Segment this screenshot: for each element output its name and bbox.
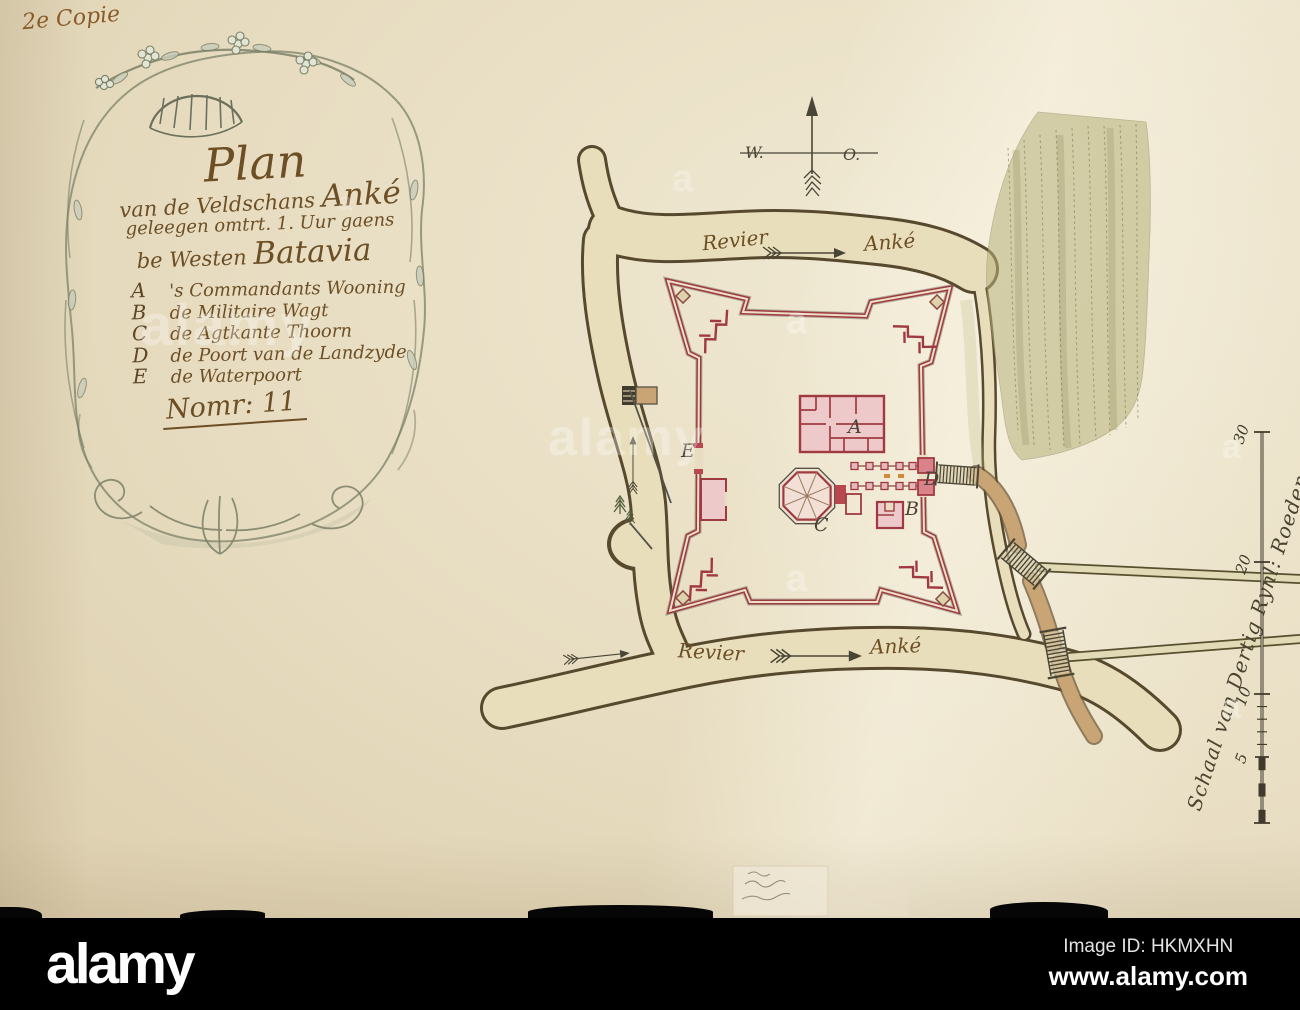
legend-label-e: de Waterpoort [171, 364, 302, 387]
river-label-bottom: Revier [677, 638, 744, 665]
shell-ornament [150, 94, 242, 137]
map-paper: 30 20 10 5 Schaal van Dertig Rynl: Roede… [0, 0, 1300, 918]
ghost-watermark-letter: a [672, 158, 695, 201]
palisade-rows [850, 463, 918, 490]
river-name-bottom: Anké [870, 633, 922, 659]
ghost-watermark-letter: a [786, 558, 809, 601]
scan-edge-artifact [990, 902, 1108, 919]
fort-letter-a: A [848, 416, 862, 438]
plantation-area [987, 112, 1151, 460]
fort-letter-c: C [814, 514, 829, 536]
bridge-gate-d [935, 462, 978, 489]
scale-tick-5: 5 [1231, 751, 1251, 766]
building-a-commandants-dwelling [800, 396, 884, 452]
paper-label-patch [733, 866, 908, 916]
scan-edge-artifact [528, 905, 713, 919]
west-bridge [622, 386, 657, 405]
fort-letter-d: D [924, 468, 939, 490]
ghost-watermark: alamy [548, 408, 705, 468]
image-id-text: Image ID: HKMXHN [1063, 936, 1233, 958]
pine-tree [614, 496, 626, 514]
compass-east-label: O. [843, 145, 860, 164]
watergate-tick [694, 469, 703, 474]
city-name: Batavia [253, 232, 372, 272]
fort-plan [668, 281, 957, 611]
scale-bar: 30 20 10 5 Schaal van Dertig Rynl: Roede… [1182, 422, 1300, 823]
alamy-logo: alamy [46, 931, 193, 997]
ghost-watermark: alamy [140, 292, 314, 359]
scanned-map-page: 30 20 10 5 Schaal van Dertig Rynl: Roede… [0, 0, 1300, 1010]
alamy-watermark-bar: alamy Image ID: HKMXHN www.alamy.com [0, 918, 1300, 1010]
fort-letter-b: B [905, 498, 919, 520]
ghost-watermark-letter: a [1222, 688, 1243, 727]
river-name-top: Anké [863, 228, 916, 256]
alamy-url: www.alamy.com [1049, 961, 1248, 992]
building-west-wall [701, 479, 726, 520]
building-b-guardhouse [877, 502, 903, 528]
title-line4-prefix: be Westen [136, 245, 253, 273]
flower-ornaments [95, 32, 317, 90]
ghost-watermark-letter: a [786, 300, 809, 343]
compass-west-label: W. [745, 143, 764, 162]
traverse-tl [691, 307, 738, 353]
ghost-watermark-letter: a [338, 186, 354, 217]
watermark-info: Image ID: HKMXHN www.alamy.com [1049, 936, 1248, 992]
ghost-watermark-letter: a [1222, 428, 1243, 467]
legend-key-e: E [133, 364, 171, 389]
